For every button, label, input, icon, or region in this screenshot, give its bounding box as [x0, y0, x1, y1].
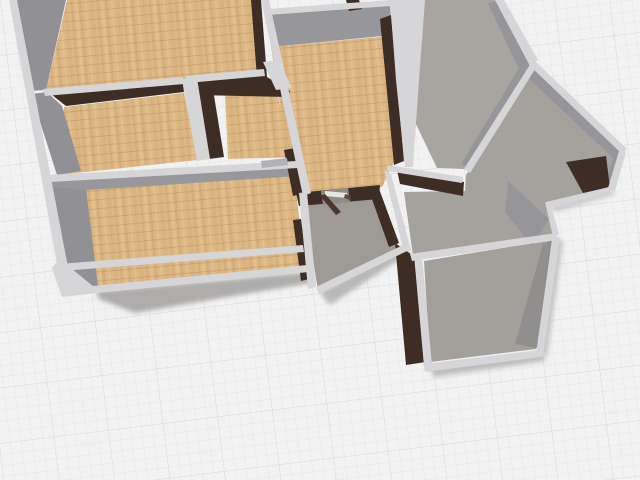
floorplan-scene: [0, 0, 640, 480]
floorplan-3d-viewport[interactable]: [0, 0, 640, 480]
